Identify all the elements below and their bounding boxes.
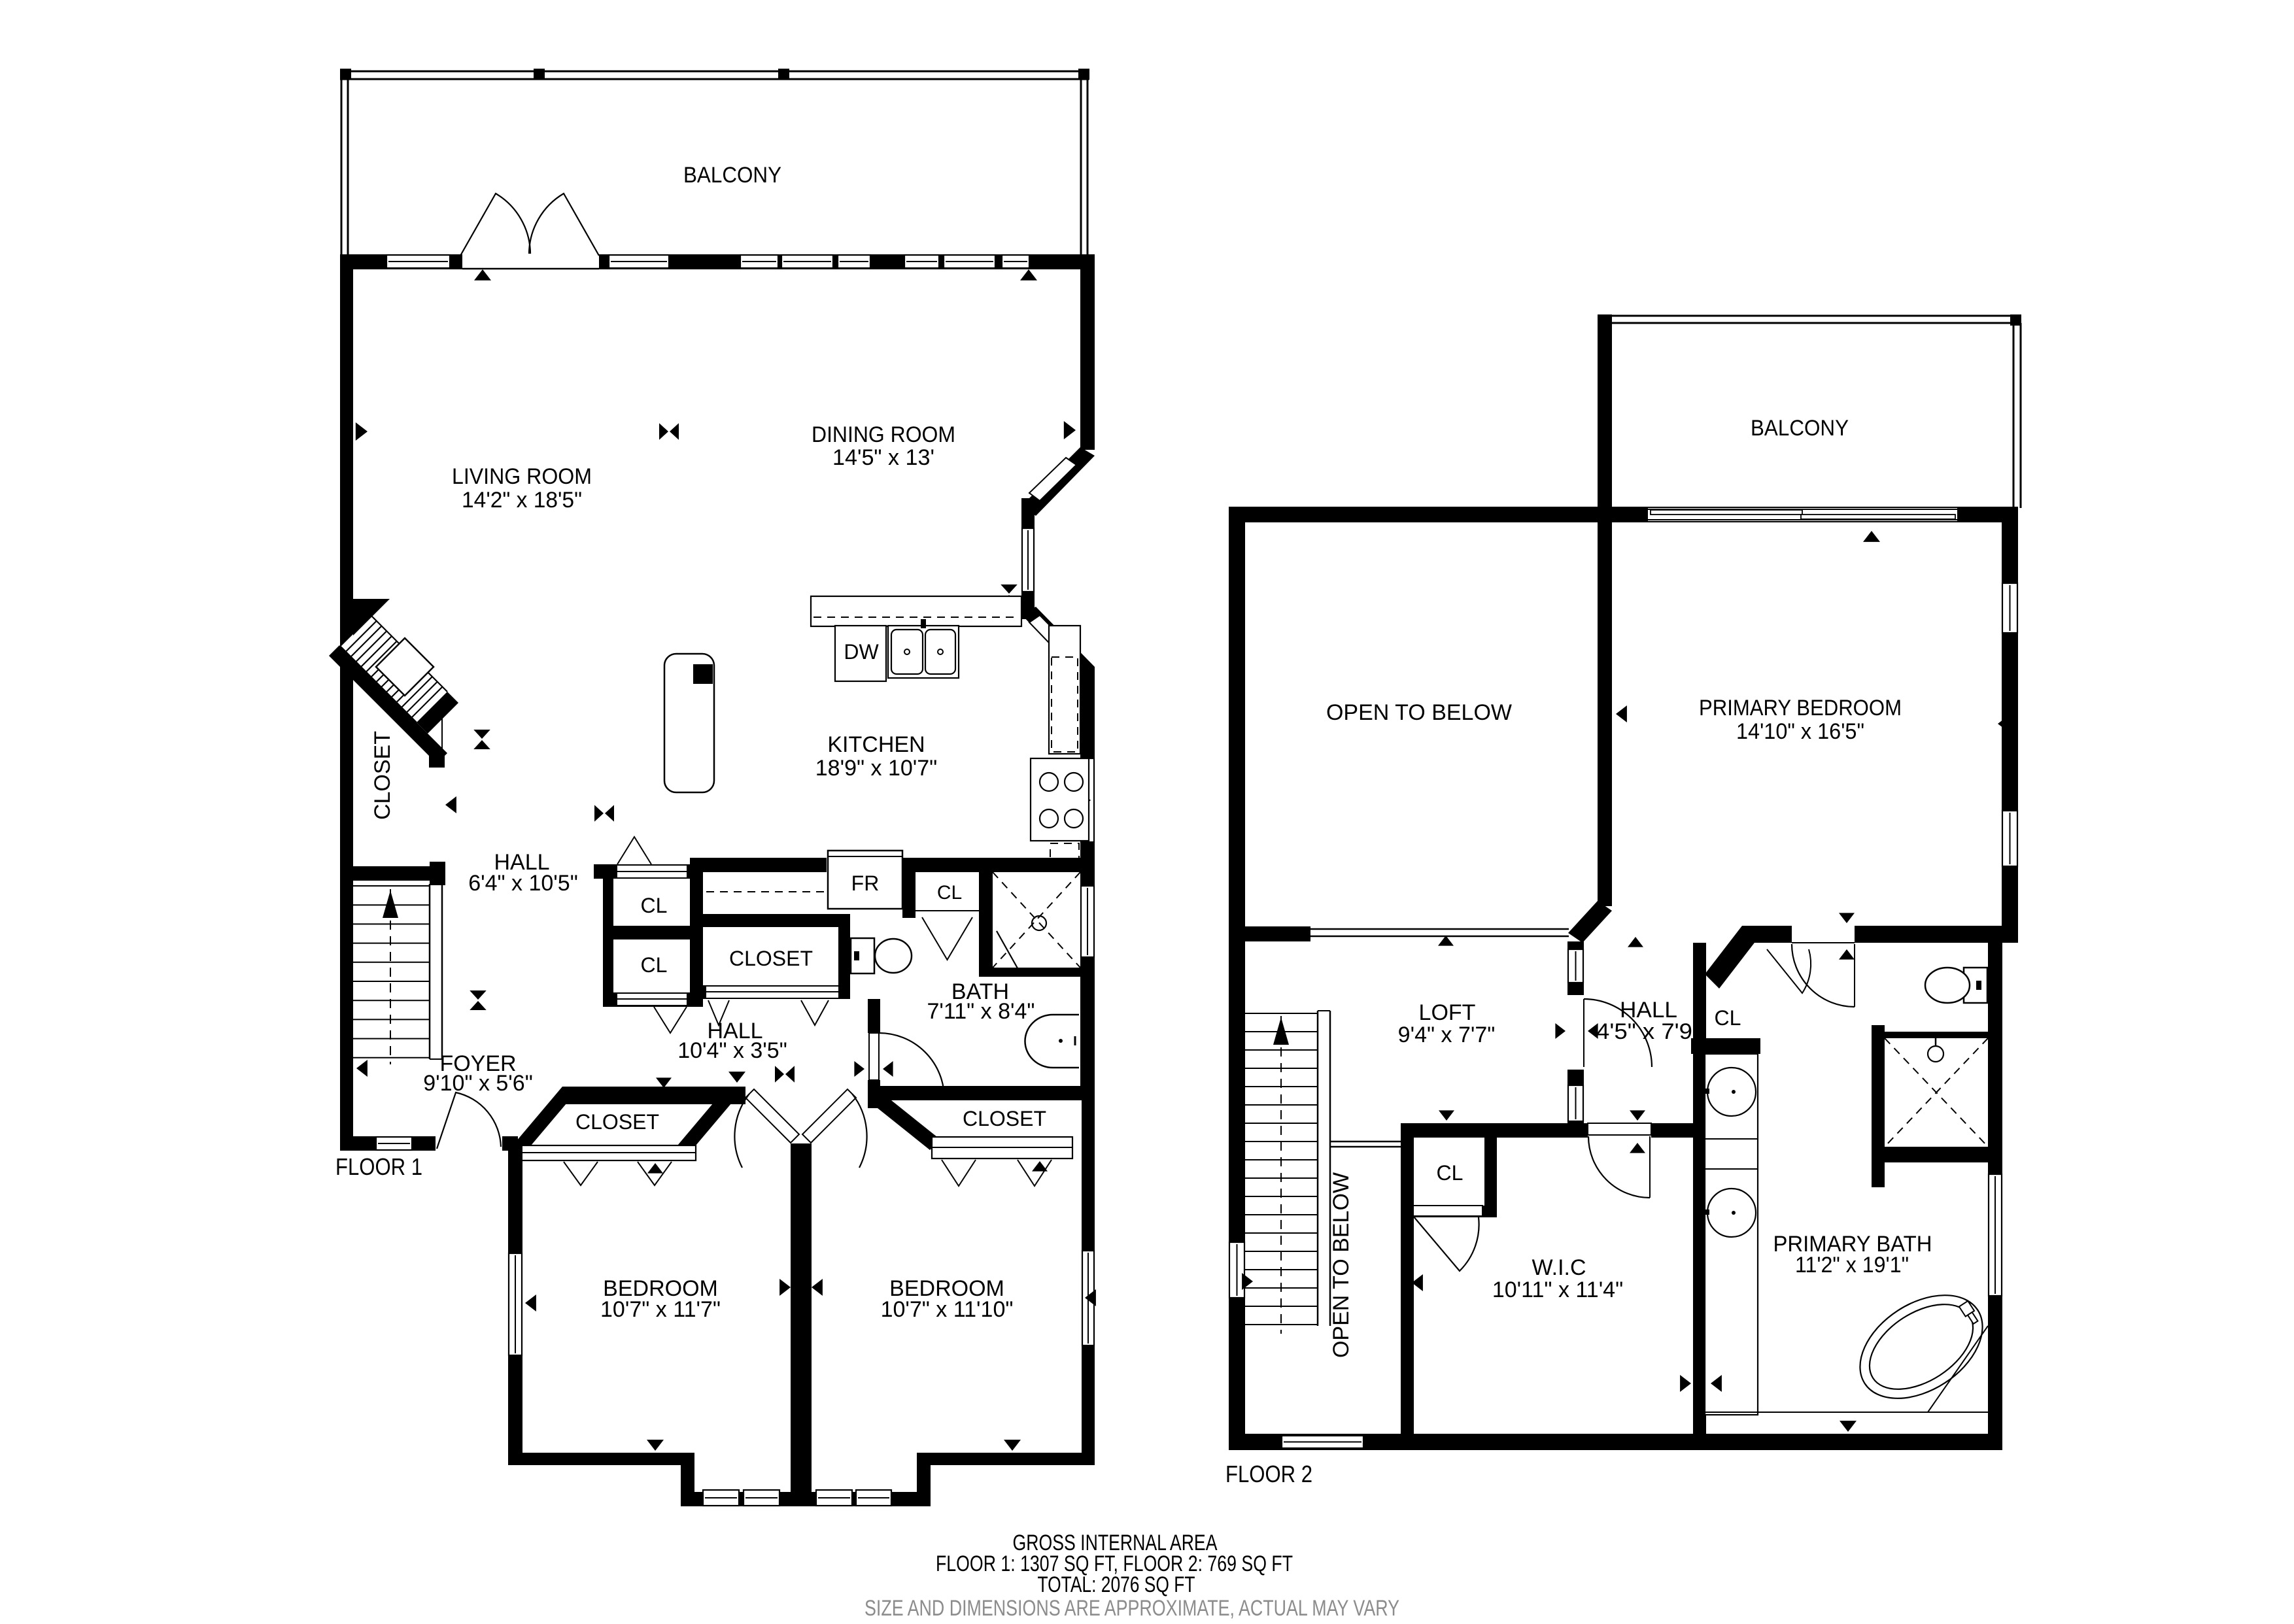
svg-text:10'11" x 11'4": 10'11" x 11'4" bbox=[1492, 1277, 1623, 1302]
svg-text:CL: CL bbox=[1715, 1006, 1741, 1030]
svg-text:CL: CL bbox=[937, 882, 962, 904]
svg-text:LIVING ROOM: LIVING ROOM bbox=[452, 464, 592, 489]
svg-text:W.I.C: W.I.C bbox=[1532, 1255, 1586, 1280]
svg-text:10'4" x 3'5": 10'4" x 3'5" bbox=[677, 1038, 787, 1063]
svg-text:14'5" x 13': 14'5" x 13' bbox=[832, 445, 934, 470]
svg-text:KITCHEN: KITCHEN bbox=[827, 732, 925, 757]
svg-text:TOTAL: 2076 SQ FT: TOTAL: 2076 SQ FT bbox=[1038, 1572, 1195, 1597]
svg-text:BALCONY: BALCONY bbox=[683, 163, 781, 188]
svg-text:CLOSET: CLOSET bbox=[963, 1107, 1046, 1130]
svg-text:18'9" x 10'7": 18'9" x 10'7" bbox=[815, 756, 937, 781]
svg-text:FLOOR 2: FLOOR 2 bbox=[1225, 1461, 1312, 1487]
svg-text:10'7" x 11'7": 10'7" x 11'7" bbox=[600, 1297, 721, 1322]
svg-text:9'4" x 7'7": 9'4" x 7'7" bbox=[1398, 1023, 1496, 1047]
svg-text:CLOSET: CLOSET bbox=[729, 947, 813, 970]
svg-text:9'10" x 5'6": 9'10" x 5'6" bbox=[423, 1071, 533, 1096]
svg-text:CL: CL bbox=[1437, 1161, 1464, 1185]
svg-text:CLOSET: CLOSET bbox=[370, 731, 395, 820]
svg-text:LOFT: LOFT bbox=[1419, 1000, 1476, 1025]
svg-text:FR: FR bbox=[851, 871, 880, 895]
svg-text:7'11" x 8'4": 7'11" x 8'4" bbox=[927, 999, 1035, 1024]
svg-text:CL: CL bbox=[641, 953, 668, 977]
svg-text:DW: DW bbox=[844, 640, 879, 664]
svg-text:CLOSET: CLOSET bbox=[575, 1110, 659, 1134]
svg-text:6'4" x 10'5": 6'4" x 10'5" bbox=[468, 871, 578, 896]
svg-text:PRIMARY BEDROOM: PRIMARY BEDROOM bbox=[1699, 696, 1902, 720]
svg-text:4'5" x 7'9": 4'5" x 7'9" bbox=[1596, 1019, 1701, 1044]
svg-text:14'10" x 16'5": 14'10" x 16'5" bbox=[1736, 719, 1864, 744]
svg-text:OPEN TO BELOW: OPEN TO BELOW bbox=[1326, 700, 1512, 725]
svg-text:10'7" x 11'10": 10'7" x 11'10" bbox=[881, 1297, 1014, 1322]
svg-text:DINING ROOM: DINING ROOM bbox=[812, 422, 955, 447]
svg-text:SIZE AND DIMENSIONS ARE APPROX: SIZE AND DIMENSIONS ARE APPROXIMATE, ACT… bbox=[865, 1596, 1399, 1621]
svg-text:FLOOR 1: FLOOR 1 bbox=[335, 1153, 422, 1180]
svg-text:14'2" x 18'5": 14'2" x 18'5" bbox=[462, 488, 582, 513]
svg-text:OPEN TO BELOW: OPEN TO BELOW bbox=[1329, 1172, 1354, 1358]
svg-text:CL: CL bbox=[641, 894, 668, 917]
svg-text:BALCONY: BALCONY bbox=[1751, 416, 1849, 441]
svg-text:11'2" x 19'1": 11'2" x 19'1" bbox=[1795, 1253, 1909, 1277]
